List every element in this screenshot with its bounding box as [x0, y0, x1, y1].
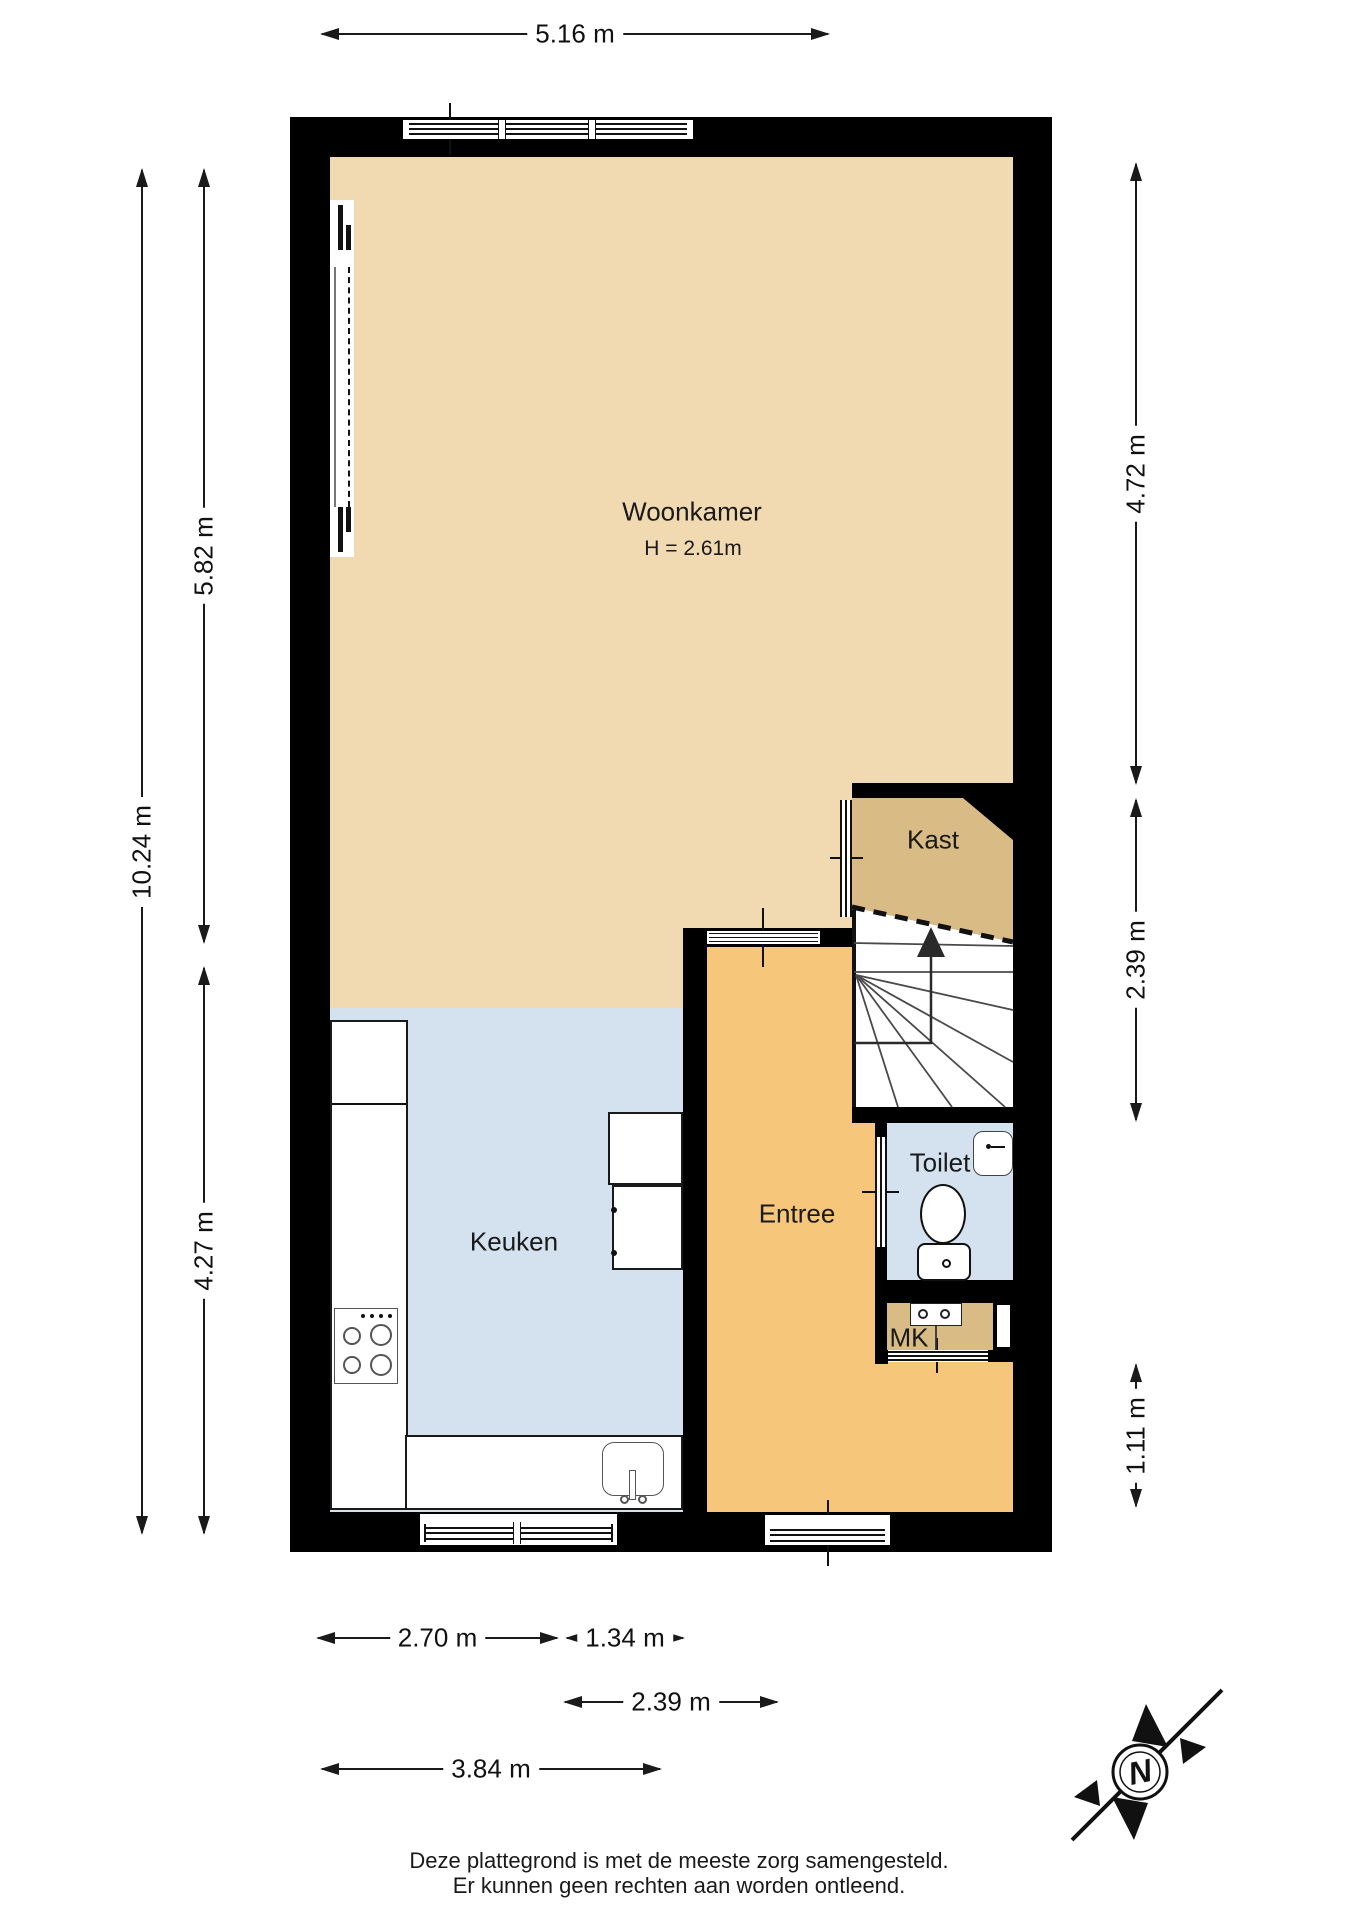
arrowhead: [1130, 766, 1142, 785]
window-toilet-strip: [875, 1137, 887, 1247]
arrowhead: [198, 1516, 210, 1535]
arrowhead: [198, 925, 210, 944]
tap-handle: [638, 1495, 647, 1504]
arrowhead: [136, 1516, 148, 1535]
kitchen-counter-left: [330, 1020, 408, 1510]
dimension-top-width: 5.16 m: [322, 27, 828, 41]
disclaimer-line-1: Deze plattegrond is met de meeste zorg s…: [409, 1848, 948, 1873]
window-left-bay: [330, 200, 354, 557]
dimension-right-upper-height: 4.72 m: [1129, 164, 1143, 783]
dimension-left-total-height: 10.24 m: [135, 170, 149, 1533]
burner: [343, 1327, 361, 1345]
burner: [370, 1354, 392, 1376]
room-label-keuken: Keuken: [470, 1227, 558, 1258]
disclaimer-text: Deze plattegrond is met de meeste zorg s…: [409, 1848, 948, 1898]
dimension-bottom-total-width: 3.84 m: [322, 1762, 660, 1776]
dimension-right-middle-height: 2.39 m: [1129, 800, 1143, 1120]
arrowhead: [316, 1632, 335, 1644]
appliance-knob: [611, 1250, 617, 1256]
dimension-left-upper-height: 5.82 m: [197, 170, 211, 942]
dimension-left-lower-height: 4.27 m: [197, 968, 211, 1533]
room-label-kast: Kast: [907, 825, 959, 856]
arrowhead: [198, 966, 210, 985]
dimension-right-lower-height: 1.11 m: [1129, 1365, 1143, 1506]
arrowhead: [320, 1763, 339, 1775]
window-kast-strip: [840, 800, 852, 917]
toilet-cistern: [917, 1243, 971, 1281]
dimension-bottom-keuken-width: 2.70 m: [318, 1631, 557, 1645]
window-top-facade: [403, 120, 693, 139]
arrowhead: [1130, 162, 1142, 181]
room-label-entree: Entree: [759, 1199, 836, 1230]
floorplan-page: N: [0, 0, 1358, 1920]
toilet-sink: [973, 1131, 1013, 1176]
appliance-knob: [611, 1207, 617, 1213]
room-label-toilet: Toilet: [910, 1148, 971, 1179]
arrowhead: [1130, 1103, 1142, 1122]
arrowhead: [136, 168, 148, 187]
compass-north-icon: N: [1072, 1690, 1222, 1840]
window-mullion: [513, 1522, 521, 1544]
stove: [334, 1308, 398, 1384]
arrowhead: [760, 1696, 779, 1708]
arrowhead: [320, 28, 339, 40]
room-label-mk: MK: [890, 1323, 929, 1354]
dimension-bottom-entree-width: 1.34 m: [567, 1631, 683, 1645]
room-height-note: H = 2.61m: [644, 537, 741, 561]
kitchen-appliance-upper: [608, 1112, 683, 1185]
burner: [370, 1324, 392, 1346]
flush-button: [942, 1259, 951, 1268]
window-keuken-facade: [420, 1514, 617, 1545]
kitchen-appliance-lower: [612, 1185, 683, 1270]
window-mullion: [588, 120, 596, 139]
arrowhead: [1130, 798, 1142, 817]
arrowhead: [540, 1632, 559, 1644]
room-label-woonkamer: Woonkamer: [622, 497, 762, 528]
disclaimer-line-2: Er kunnen geen rechten aan worden ontlee…: [409, 1873, 948, 1898]
arrowhead: [811, 28, 830, 40]
sink-tap: [629, 1470, 636, 1500]
kitchen-counter-bottom: [405, 1435, 683, 1510]
arrowhead: [643, 1763, 662, 1775]
toilet-bowl: [920, 1184, 966, 1244]
dimension-bottom-entree-total-width: 2.39 m: [565, 1695, 777, 1709]
overhang-dashed-line: [348, 267, 350, 507]
arrowhead: [1130, 1489, 1142, 1508]
window-entree-facade: [765, 1515, 890, 1545]
arrowhead: [198, 168, 210, 187]
window-mullion: [498, 120, 506, 139]
tap-handle: [620, 1495, 629, 1504]
arrowhead: [563, 1696, 582, 1708]
window-entree-glazed-panel: [707, 931, 820, 944]
burner: [343, 1356, 361, 1374]
arrowhead: [1130, 1363, 1142, 1382]
